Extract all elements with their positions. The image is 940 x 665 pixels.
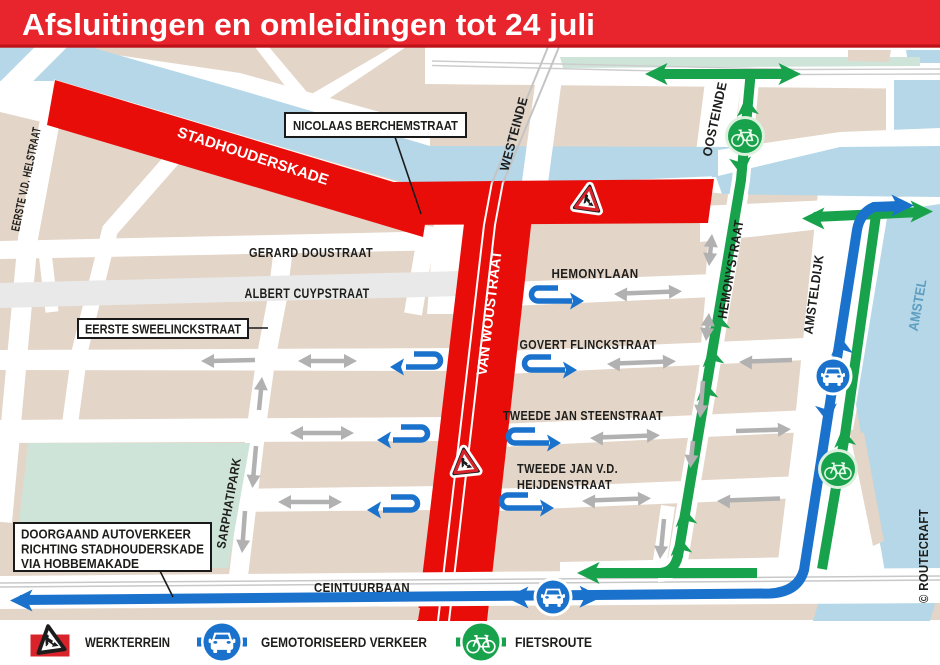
svg-text:VIA HOBBEMAKADE: VIA HOBBEMAKADE: [21, 557, 139, 571]
svg-text:HEMONYLAAN: HEMONYLAAN: [552, 267, 639, 281]
svg-text:RICHTING STADHOUDERSKADE: RICHTING STADHOUDERSKADE: [21, 543, 204, 557]
svg-text:TWEEDE JAN STEENSTRAAT: TWEEDE JAN STEENSTRAAT: [503, 408, 663, 423]
svg-text:NICOLAAS BERCHEMSTRAAT: NICOLAAS BERCHEMSTRAAT: [293, 118, 458, 133]
svg-text:HEIJDENSTRAAT: HEIJDENSTRAAT: [517, 477, 612, 492]
svg-text:Afsluitingen en omleidingen to: Afsluitingen en omleidingen tot 24 juli: [22, 7, 595, 42]
svg-text:EERSTE SWEELINCKSTRAAT: EERSTE SWEELINCKSTRAAT: [85, 323, 241, 337]
svg-text:GOVERT FLINCKSTRAAT: GOVERT FLINCKSTRAAT: [520, 337, 657, 352]
svg-text:WERKTERREIN: WERKTERREIN: [85, 635, 170, 650]
svg-text:GERARD DOUSTRAAT: GERARD DOUSTRAAT: [249, 245, 373, 260]
svg-text:DOORGAAND AUTOVERKEER: DOORGAAND AUTOVERKEER: [21, 528, 191, 542]
svg-text:© ROUTECRAFT: © ROUTECRAFT: [917, 509, 931, 603]
svg-text:GEMOTORISEERD VERKEER: GEMOTORISEERD VERKEER: [261, 635, 427, 650]
svg-text:TWEEDE JAN V.D.: TWEEDE JAN V.D.: [517, 461, 618, 476]
svg-text:FIETSROUTE: FIETSROUTE: [515, 635, 592, 650]
svg-text:CEINTUURBAAN: CEINTUURBAAN: [314, 580, 410, 595]
svg-text:ALBERT CUYPSTRAAT: ALBERT CUYPSTRAAT: [245, 286, 370, 301]
